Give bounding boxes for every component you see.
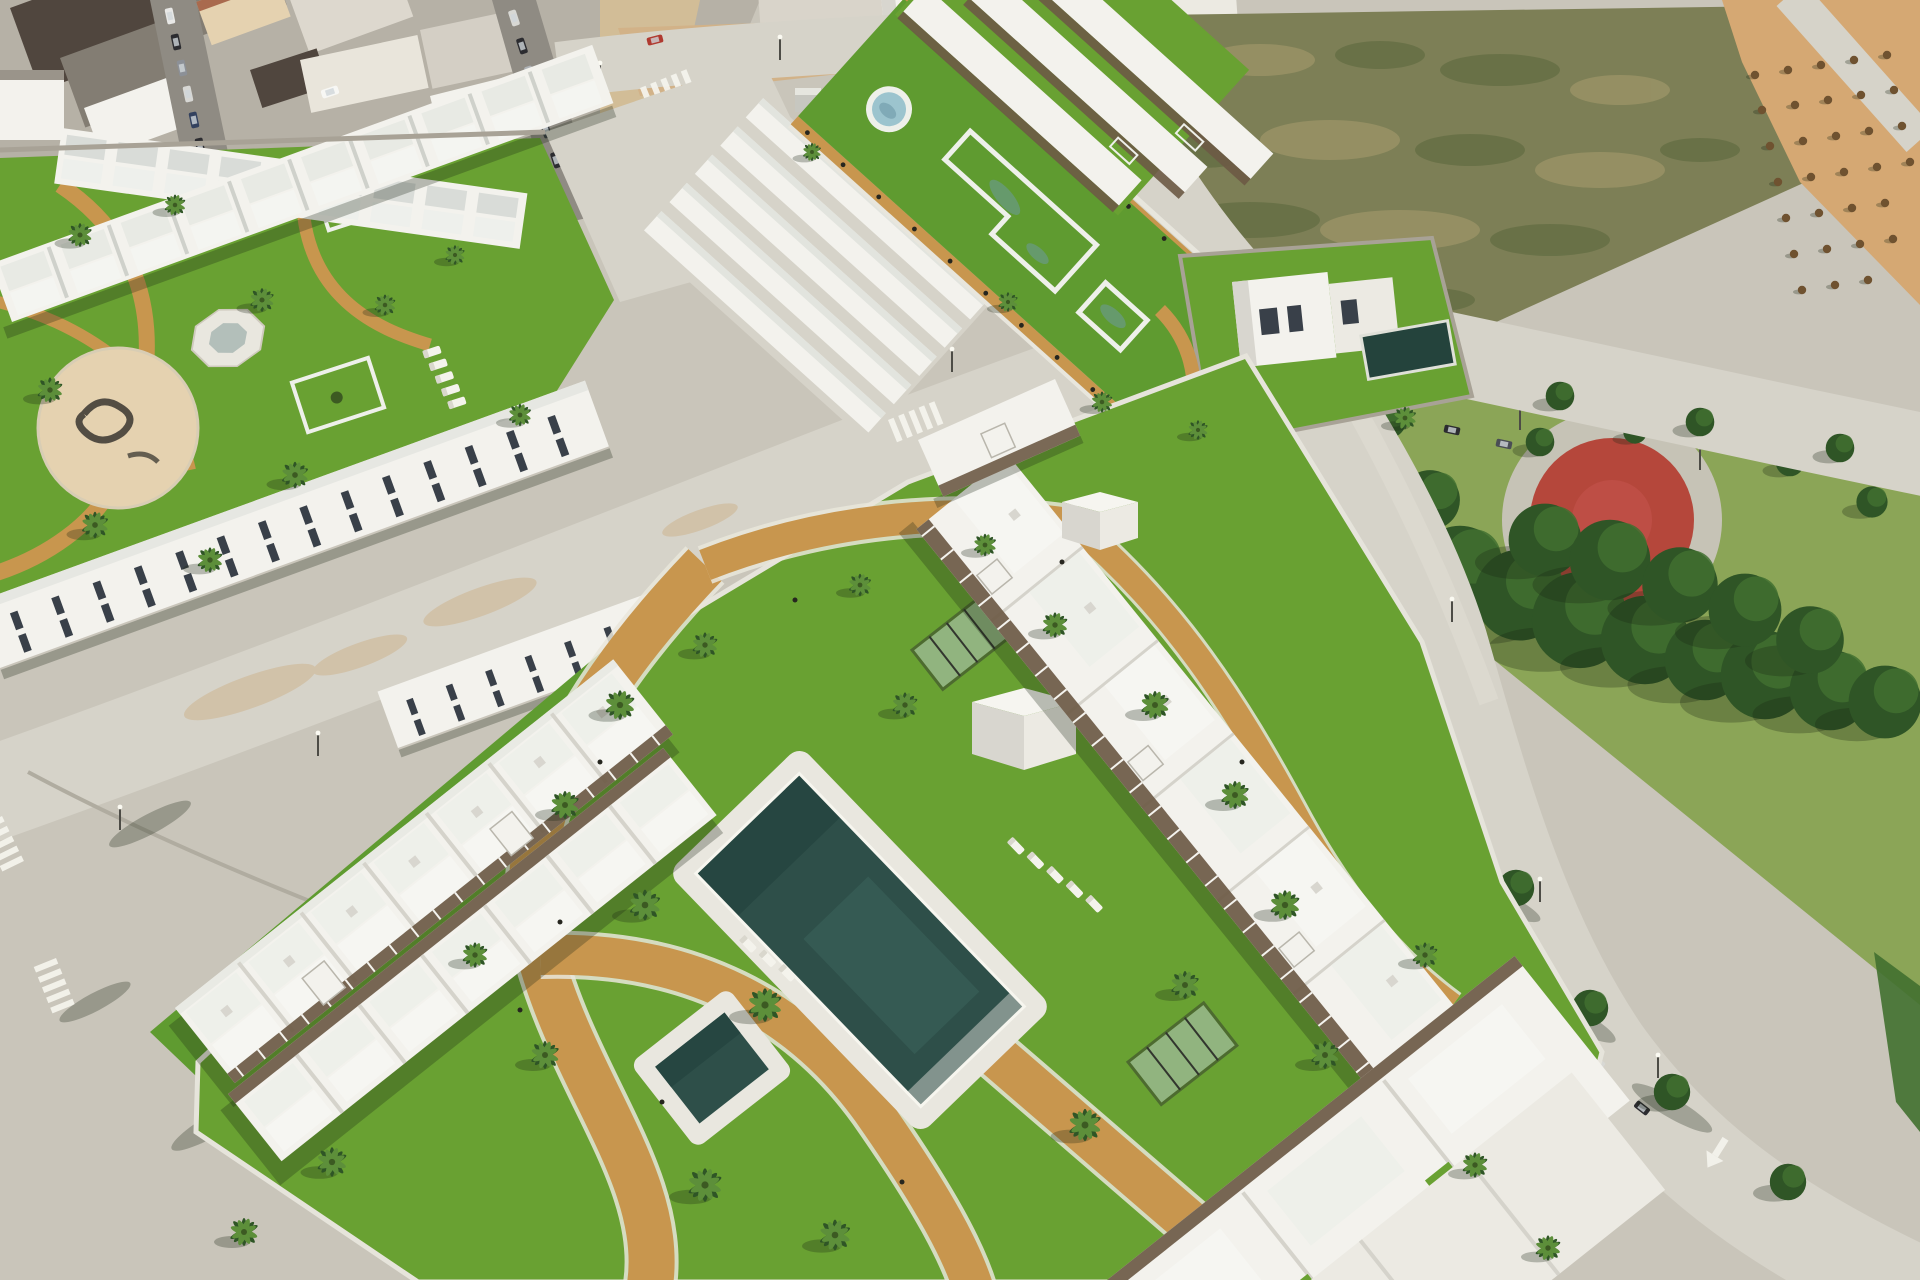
aerial-render: [0, 0, 1920, 1280]
utility-cube: [1062, 492, 1138, 550]
aerial-render-canvas: [0, 0, 1920, 1280]
garden-plaza: [38, 348, 198, 508]
